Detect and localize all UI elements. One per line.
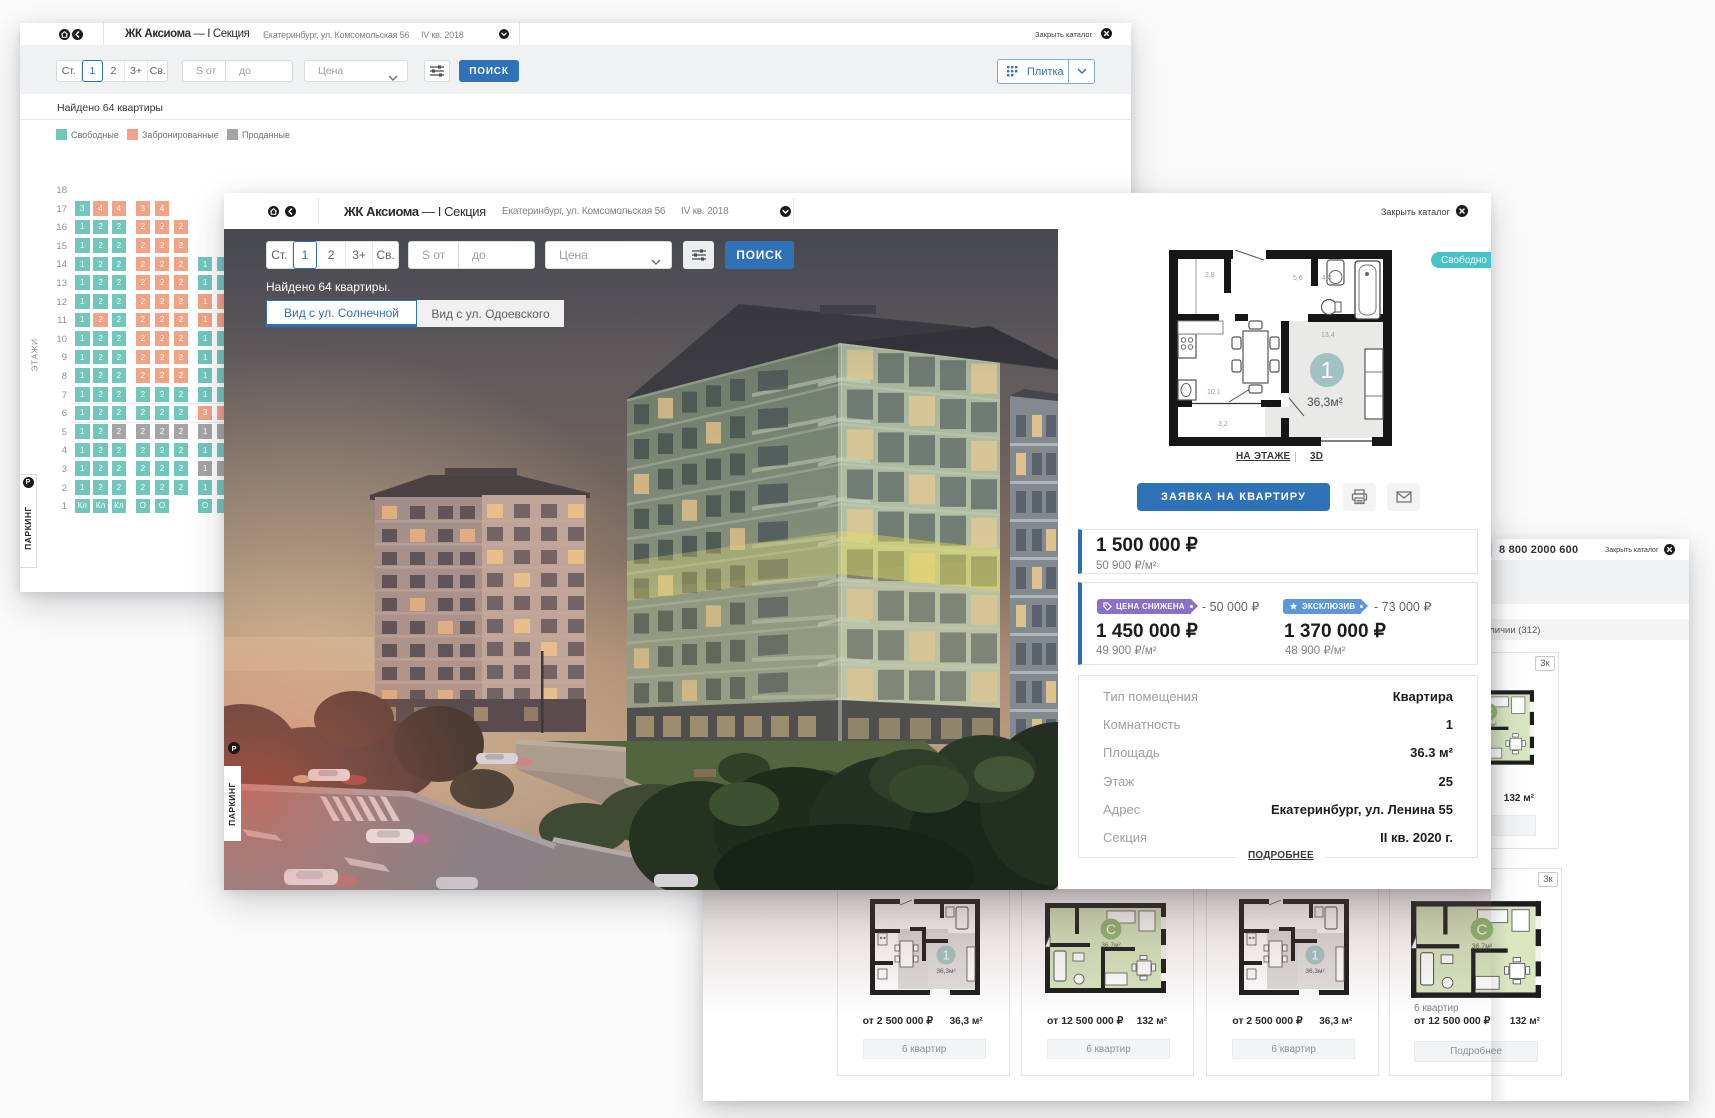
- svg-text:5,6: 5,6: [1293, 275, 1303, 282]
- svg-text:1: 1: [1321, 357, 1334, 383]
- svg-text:36,3м²: 36,3м²: [1307, 395, 1343, 409]
- svg-text:4,4: 4,4: [1322, 275, 1332, 282]
- svg-text:2,8: 2,8: [1205, 272, 1215, 279]
- svg-text:3,2: 3,2: [1218, 421, 1228, 428]
- svg-text:10,1: 10,1: [1207, 389, 1221, 396]
- svg-text:13,4: 13,4: [1321, 332, 1335, 339]
